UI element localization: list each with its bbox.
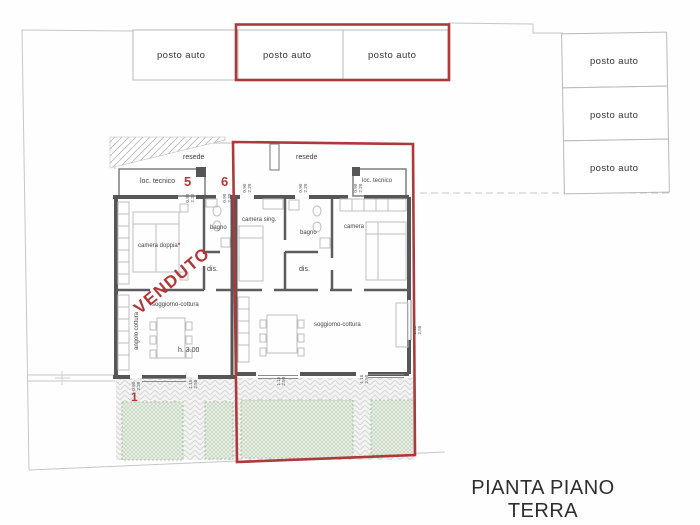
dim-mark-10: 1.15 2.50 xyxy=(412,322,422,338)
door-number-5: 5 xyxy=(184,175,191,188)
right-resede-label: resede xyxy=(296,154,317,161)
right-bagno-label: bagno xyxy=(300,230,317,236)
dim-mark-5: 0.90 2.20 xyxy=(353,180,363,196)
left-loc-tecnico-label: loc. tecnico xyxy=(140,178,175,185)
parking-right-label-2: posto auto xyxy=(590,111,638,121)
dim-mark-6: 0.90 2.20 xyxy=(131,378,141,394)
parking-top-label-1: posto auto xyxy=(157,51,205,61)
parking-right-label-3: posto auto xyxy=(590,164,638,174)
right-loc-tecnico-label: loc. tecnico xyxy=(362,178,392,184)
right-soggiorno-label: soggiorno-cottura xyxy=(314,322,361,328)
dim-mark-3: 0.90 2.20 xyxy=(242,180,252,196)
left-bagno-label: bagno xyxy=(210,225,227,231)
camera-doppia-label: camera doppia* xyxy=(138,243,180,249)
left-resede-label: resede xyxy=(183,154,204,161)
right-dis-label: dis. xyxy=(299,266,310,273)
left-dis-label: dis. xyxy=(207,266,218,273)
parking-top-label-3: posto auto xyxy=(368,51,416,61)
parking-right-label-1: posto auto xyxy=(590,57,638,67)
drawing-title: PIANTA PIANO TERRA xyxy=(448,477,638,525)
dim-mark-1: 0.90 2.20 xyxy=(185,190,195,206)
floor-plan-page: posto auto posto auto posto auto posto a… xyxy=(0,0,700,525)
door-number-6: 6 xyxy=(221,175,228,188)
right-camera-label: camera xyxy=(344,224,364,230)
parking-top-label-2: posto auto xyxy=(263,51,311,61)
dim-mark-9: 1.15 2.50 xyxy=(359,371,369,387)
dim-mark-2: 0.90 2.20 xyxy=(222,190,232,206)
camera-doppia-text: camera doppia xyxy=(138,243,178,249)
dim-mark-8: 1.15 2.50 xyxy=(276,373,286,389)
garden-patches xyxy=(122,400,415,460)
stairs-hatch xyxy=(110,137,225,168)
pillar xyxy=(270,144,279,170)
camera-doppia-asterisk: * xyxy=(178,243,180,249)
floor-plan-drawing xyxy=(0,0,700,525)
dim-mark-4: 0.90 2.20 xyxy=(298,180,308,196)
camera-sing-label: camera sing. xyxy=(242,217,276,223)
height-note-label: h. 3.00 xyxy=(178,347,199,354)
dim-mark-7: 1.15 2.50 xyxy=(188,376,198,392)
window-sills xyxy=(142,300,411,382)
